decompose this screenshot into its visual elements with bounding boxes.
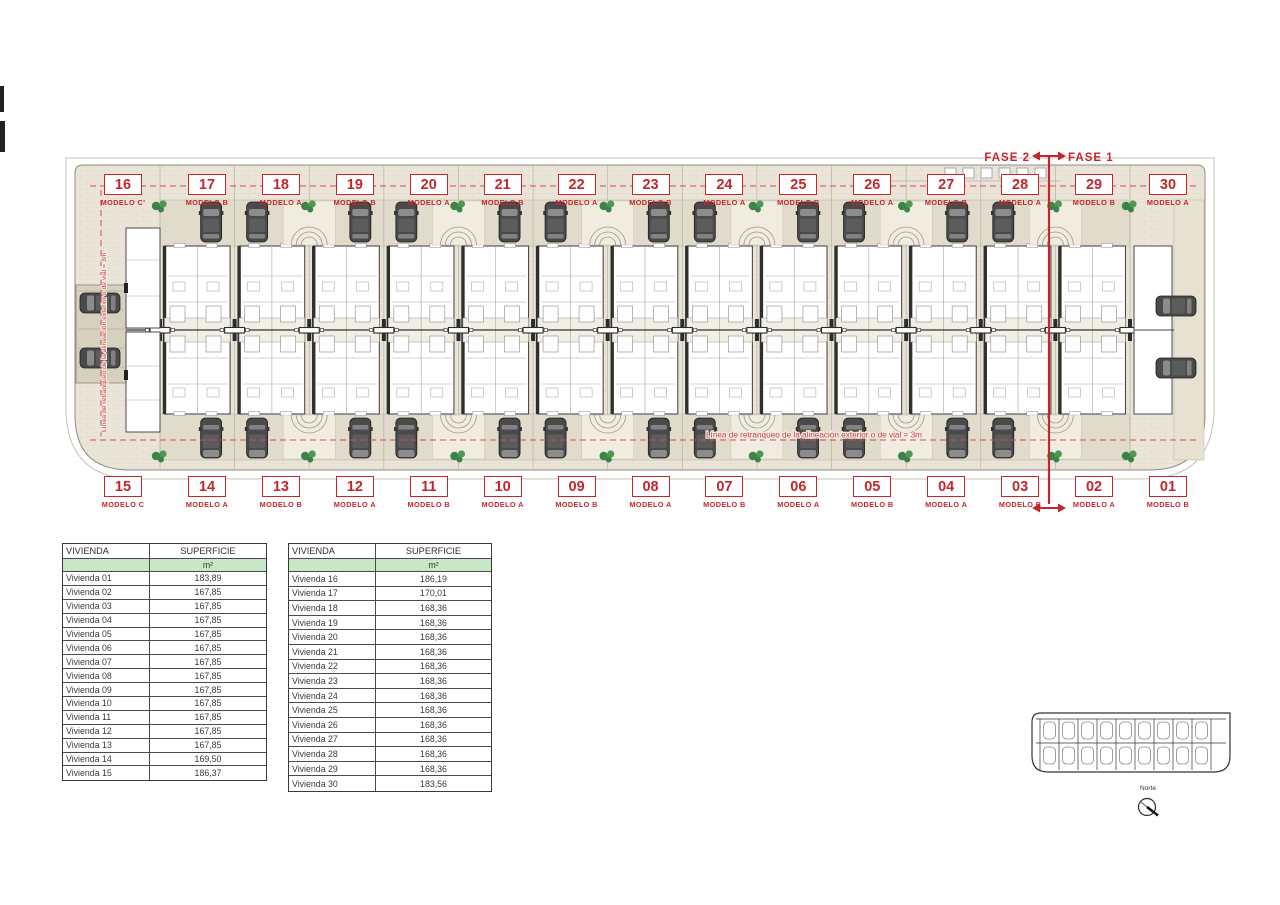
unit-number-29: 29 xyxy=(1075,174,1113,195)
table-row: Vivienda 18 168,36 xyxy=(289,601,491,616)
unit-number-02: 02 xyxy=(1075,476,1113,497)
superficie-cell: 186,19 xyxy=(376,572,491,587)
unit-number-16: 16 xyxy=(104,174,142,195)
superficie-cell: 168,36 xyxy=(376,674,491,689)
unit-model-label: MODELO C' xyxy=(77,198,169,207)
table-row: Vivienda 11 167,85 xyxy=(63,711,266,725)
vivienda-cell: Vivienda 19 xyxy=(289,616,376,631)
vivienda-cell: Vivienda 07 xyxy=(63,655,150,669)
table-row: Vivienda 04 167,85 xyxy=(63,614,266,628)
vivienda-cell: Vivienda 24 xyxy=(289,689,376,704)
table-unit-row: m² xyxy=(289,559,491,572)
table-row: Vivienda 29 168,36 xyxy=(289,762,491,777)
table-row: Vivienda 21 168,36 xyxy=(289,645,491,660)
table-row: Vivienda 06 167,85 xyxy=(63,641,266,655)
unit-number-11: 11 xyxy=(410,476,448,497)
superficie-cell: 167,85 xyxy=(150,697,266,711)
table-row: Vivienda 02 167,85 xyxy=(63,586,266,600)
unit-cell: m² xyxy=(376,559,491,572)
table-row: Vivienda 07 167,85 xyxy=(63,655,266,669)
table-header-row: VIVIENDA SUPERFICIE xyxy=(63,544,266,559)
unit-number-01: 01 xyxy=(1149,476,1187,497)
table-header-row: VIVIENDA SUPERFICIE xyxy=(289,544,491,559)
table-row: Vivienda 12 167,85 xyxy=(63,725,266,739)
superficie-cell: 168,36 xyxy=(376,660,491,675)
vivienda-cell: Vivienda 27 xyxy=(289,733,376,748)
vivienda-cell: Vivienda 01 xyxy=(63,572,150,586)
superficie-cell: 167,85 xyxy=(150,711,266,725)
vivienda-cell: Vivienda 16 xyxy=(289,572,376,587)
vivienda-cell: Vivienda 11 xyxy=(63,711,150,725)
superficie-cell: 167,85 xyxy=(150,669,266,683)
unit-model-label: MODELO C xyxy=(77,500,169,509)
vivienda-cell: Vivienda 06 xyxy=(63,641,150,655)
key-plan xyxy=(1010,700,1270,830)
table-unit-row: m² xyxy=(63,559,266,572)
table-row: Vivienda 16 186,19 xyxy=(289,572,491,587)
unit-number-06: 06 xyxy=(779,476,817,497)
vivienda-cell: Vivienda 30 xyxy=(289,776,376,791)
col-header-superficie: SUPERFICIE xyxy=(376,544,491,559)
unit-labels-layer: 16MODELO C'17MODELO B18MODELO A19MODELO … xyxy=(0,0,1280,535)
superficie-cell: 167,85 xyxy=(150,641,266,655)
unit-number-07: 07 xyxy=(705,476,743,497)
vivienda-cell: Vivienda 25 xyxy=(289,703,376,718)
unit-number-18: 18 xyxy=(262,174,300,195)
superficie-cell: 167,85 xyxy=(150,586,266,600)
table-row: Vivienda 28 168,36 xyxy=(289,747,491,762)
superficie-cell: 168,36 xyxy=(376,689,491,704)
unit-cell: m² xyxy=(150,559,266,572)
unit-number-13: 13 xyxy=(262,476,300,497)
unit-number-27: 27 xyxy=(927,174,965,195)
vivienda-cell: Vivienda 13 xyxy=(63,739,150,753)
vivienda-cell: Vivienda 14 xyxy=(63,753,150,767)
superficie-cell: 167,85 xyxy=(150,725,266,739)
table-row: Vivienda 10 167,85 xyxy=(63,697,266,711)
table-row: Vivienda 30 183,56 xyxy=(289,776,491,791)
unit-number-24: 24 xyxy=(705,174,743,195)
vivienda-cell: Vivienda 28 xyxy=(289,747,376,762)
vivienda-cell: Vivienda 02 xyxy=(63,586,150,600)
north-compass-icon xyxy=(1139,799,1159,816)
unit-number-30: 30 xyxy=(1149,174,1187,195)
superficie-cell: 167,85 xyxy=(150,600,266,614)
superficie-cell: 168,36 xyxy=(376,762,491,777)
table-row: Vivienda 17 170,01 xyxy=(289,587,491,602)
superficie-cell: 169,50 xyxy=(150,753,266,767)
superficie-cell: 168,36 xyxy=(376,645,491,660)
col-header-superficie: SUPERFICIE xyxy=(150,544,266,559)
unit-model-label: MODELO B xyxy=(1122,500,1214,509)
unit-number-12: 12 xyxy=(336,476,374,497)
table-row: Vivienda 08 167,85 xyxy=(63,669,266,683)
unit-number-23: 23 xyxy=(632,174,670,195)
superficie-table-1: VIVIENDA SUPERFICIE m² Vivienda 01 183,8… xyxy=(62,543,267,781)
unit-number-03: 03 xyxy=(1001,476,1039,497)
superficie-cell: 183,56 xyxy=(376,776,491,791)
superficie-cell: 170,01 xyxy=(376,587,491,602)
vivienda-cell: Vivienda 10 xyxy=(63,697,150,711)
superficie-cell: 168,36 xyxy=(376,601,491,616)
table-row: Vivienda 20 168,36 xyxy=(289,630,491,645)
table-row: Vivienda 13 167,85 xyxy=(63,739,266,753)
unit-number-20: 20 xyxy=(410,174,448,195)
vivienda-cell: Vivienda 12 xyxy=(63,725,150,739)
unit-model-label: MODELO A xyxy=(1122,198,1214,207)
table-row: Vivienda 14 169,50 xyxy=(63,753,266,767)
unit-number-04: 04 xyxy=(927,476,965,497)
unit-number-28: 28 xyxy=(1001,174,1039,195)
col-header-vivienda: VIVIENDA xyxy=(63,544,150,559)
table-row: Vivienda 22 168,36 xyxy=(289,660,491,675)
table-row: Vivienda 19 168,36 xyxy=(289,616,491,631)
superficie-cell: 167,85 xyxy=(150,655,266,669)
table-row: Vivienda 15 186,37 xyxy=(63,766,266,780)
unit-number-15: 15 xyxy=(104,476,142,497)
vivienda-cell: Vivienda 26 xyxy=(289,718,376,733)
table-row: Vivienda 09 167,85 xyxy=(63,683,266,697)
superficie-cell: 168,36 xyxy=(376,703,491,718)
unit-number-14: 14 xyxy=(188,476,226,497)
superficie-cell: 167,85 xyxy=(150,628,266,642)
table-row: Vivienda 27 168,36 xyxy=(289,733,491,748)
table-row: Vivienda 23 168,36 xyxy=(289,674,491,689)
superficie-cell: 186,37 xyxy=(150,766,266,780)
table-row: Vivienda 01 183,89 xyxy=(63,572,266,586)
superficie-table-2: VIVIENDA SUPERFICIE m² Vivienda 16 186,1… xyxy=(288,543,492,792)
vivienda-cell: Vivienda 03 xyxy=(63,600,150,614)
col-header-vivienda: VIVIENDA xyxy=(289,544,376,559)
table-row: Vivienda 25 168,36 xyxy=(289,703,491,718)
superficie-cell: 167,85 xyxy=(150,683,266,697)
superficie-cell: 168,36 xyxy=(376,733,491,748)
vivienda-cell: Vivienda 17 xyxy=(289,587,376,602)
vivienda-cell: Vivienda 29 xyxy=(289,762,376,777)
unit-number-17: 17 xyxy=(188,174,226,195)
superficie-cell: 168,36 xyxy=(376,718,491,733)
north-label: Norte xyxy=(1128,785,1168,792)
superficie-cell: 168,36 xyxy=(376,616,491,631)
vivienda-cell: Vivienda 22 xyxy=(289,660,376,675)
vivienda-cell: Vivienda 15 xyxy=(63,766,150,780)
table-row: Vivienda 03 167,85 xyxy=(63,600,266,614)
unit-number-21: 21 xyxy=(484,174,522,195)
superficie-cell: 168,36 xyxy=(376,747,491,762)
table-row: Vivienda 26 168,36 xyxy=(289,718,491,733)
plan-sheet: { "plan": { "fase_labels": { "left": "FA… xyxy=(0,0,1280,905)
unit-number-22: 22 xyxy=(558,174,596,195)
vivienda-cell: Vivienda 09 xyxy=(63,683,150,697)
unit-number-19: 19 xyxy=(336,174,374,195)
vivienda-cell: Vivienda 18 xyxy=(289,601,376,616)
vivienda-cell: Vivienda 04 xyxy=(63,614,150,628)
unit-number-26: 26 xyxy=(853,174,891,195)
vivienda-cell: Vivienda 20 xyxy=(289,630,376,645)
vivienda-cell: Vivienda 21 xyxy=(289,645,376,660)
unit-number-08: 08 xyxy=(632,476,670,497)
unit-number-25: 25 xyxy=(779,174,817,195)
superficie-cell: 183,89 xyxy=(150,572,266,586)
vivienda-cell: Vivienda 08 xyxy=(63,669,150,683)
superficie-cell: 168,36 xyxy=(376,630,491,645)
table-row: Vivienda 24 168,36 xyxy=(289,689,491,704)
table-row: Vivienda 05 167,85 xyxy=(63,628,266,642)
superficie-cell: 167,85 xyxy=(150,739,266,753)
superficie-cell: 167,85 xyxy=(150,614,266,628)
vivienda-cell: Vivienda 05 xyxy=(63,628,150,642)
unit-number-10: 10 xyxy=(484,476,522,497)
unit-number-05: 05 xyxy=(853,476,891,497)
vivienda-cell: Vivienda 23 xyxy=(289,674,376,689)
unit-number-09: 09 xyxy=(558,476,596,497)
